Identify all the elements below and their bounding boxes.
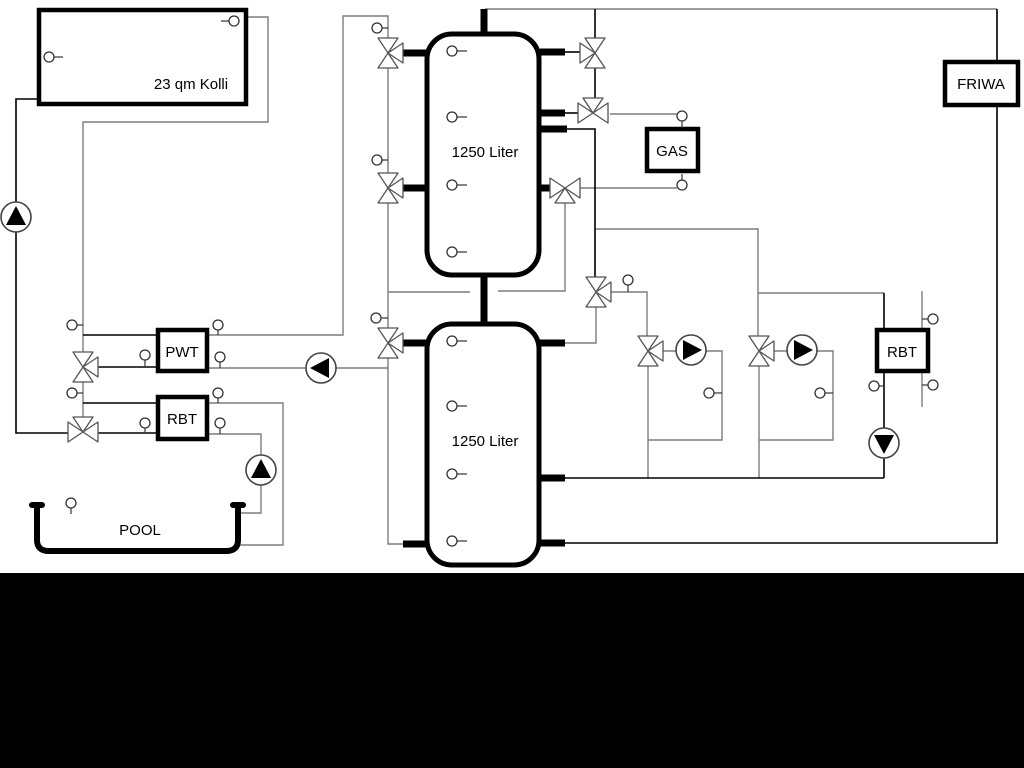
sensor-pool-icon	[66, 498, 76, 514]
sensor-pwt-right-top-icon	[213, 320, 223, 335]
pwt-charge-pump-icon	[306, 353, 336, 383]
valve-tank2-left-icon	[378, 328, 403, 358]
valve-pwt-icon	[73, 352, 98, 382]
pool-pump-icon	[246, 455, 276, 485]
heating-circuit-1-pump-icon	[676, 335, 706, 365]
sensor-rbt-left-inlet-icon	[140, 418, 150, 433]
sensor-rbt-left-bottom-icon	[215, 418, 225, 434]
valve-gas-return-icon	[550, 178, 580, 203]
rbt-return-pump-icon	[869, 428, 899, 458]
rbt-left-label: RBT	[167, 411, 197, 428]
valve-gas-supply-icon	[578, 98, 608, 123]
rbt-right-label: RBT	[887, 344, 917, 361]
sensor-rbt-left-top-icon	[213, 388, 223, 403]
sensor-bypass-top-icon	[922, 314, 938, 324]
valve-distribution-icon	[586, 277, 611, 307]
sensor-gas-top-icon	[677, 111, 687, 128]
tank2-inlet-elbow	[565, 307, 596, 343]
valve-circuit1-mixer-icon	[638, 336, 663, 366]
collector-label: 23 qm Kolli	[154, 76, 228, 93]
sensor-left-line-2-icon	[67, 388, 83, 398]
sensor-valve3-icon	[371, 313, 388, 323]
sensor-circuit2-loop-icon	[815, 388, 833, 398]
letterbox-bar	[0, 573, 1024, 768]
valve-circuit2-mixer-icon	[749, 336, 774, 366]
sensor-pwt-right-bottom-icon	[215, 352, 225, 368]
collector-flow-pipe	[16, 99, 68, 433]
valve-tank1-right-top-icon	[580, 38, 605, 68]
tank1-label: 1250 Liter	[452, 144, 519, 161]
sensor-pwt-left-icon	[140, 350, 150, 367]
sensor-rbt-right-return-icon	[869, 381, 884, 391]
friwa-label: FRIWA	[957, 76, 1005, 93]
sensor-gas-bottom-icon	[677, 174, 687, 190]
heating-circuit-2-pump-icon	[787, 335, 817, 365]
valve-tank1-left-top-icon	[378, 38, 403, 68]
valve-tank1-left-bottom-icon	[378, 173, 403, 203]
sensor-valve1-icon	[372, 23, 388, 33]
sensor-circuit1-loop-icon	[704, 388, 722, 398]
schematic-canvas: 23 qm Kolli 1250 Liter 1250 Liter GAS FR…	[0, 0, 1024, 768]
circuit2-feed-pipe	[595, 229, 758, 344]
pool-label: POOL	[119, 522, 161, 539]
sensor-left-line-1-icon	[67, 320, 83, 330]
solar-pump-icon	[1, 202, 31, 232]
tank2-label: 1250 Liter	[452, 433, 519, 450]
valve-rbt-left-icon	[68, 417, 98, 442]
sensor-circuit1-feed-icon	[623, 275, 633, 292]
sensor-valve2-icon	[372, 155, 388, 165]
sensor-bypass-bottom-icon	[922, 380, 938, 390]
pwt-label: PWT	[165, 344, 198, 361]
gas-label: GAS	[656, 143, 688, 160]
